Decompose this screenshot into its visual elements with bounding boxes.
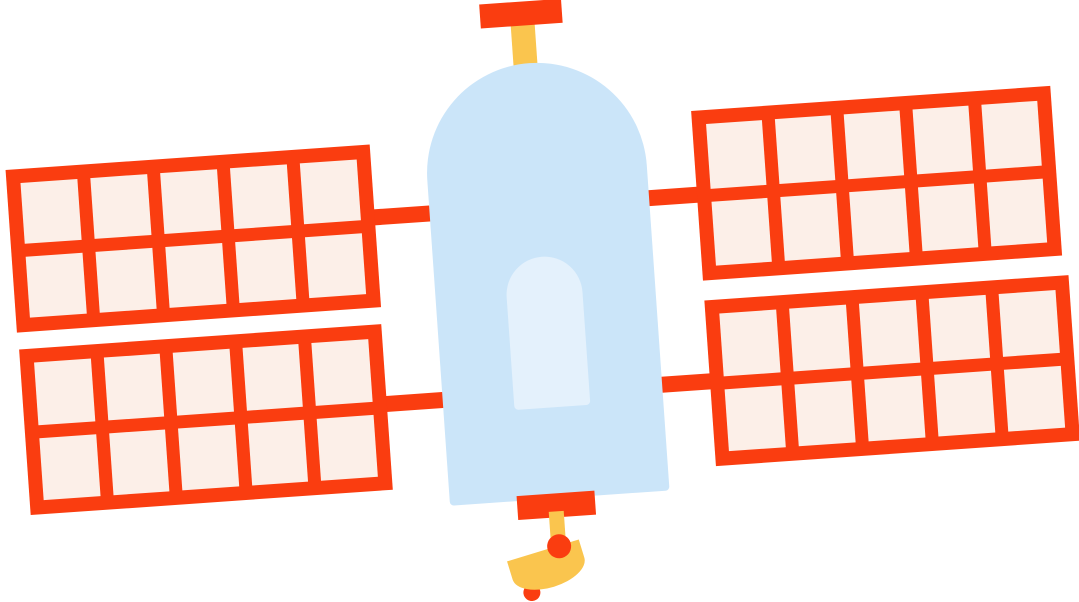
solar-cell (929, 295, 990, 361)
solar-cell (849, 188, 909, 256)
solar-cell (109, 429, 170, 495)
solar-cell (90, 174, 151, 239)
solar-cell (165, 243, 226, 308)
solar-panel-bottom-left (19, 324, 393, 515)
solar-panel-bottom-right (704, 275, 1079, 466)
solar-cell (26, 253, 87, 318)
solar-cell (987, 178, 1047, 246)
solar-cell (913, 106, 973, 174)
panel-connector-bar-top-left (366, 205, 437, 226)
satellite-body (420, 55, 670, 505)
solar-cell (1004, 365, 1065, 431)
solar-cell (711, 197, 771, 265)
solar-cell (918, 183, 978, 251)
solar-cell (864, 375, 925, 441)
solar-cell (95, 248, 156, 313)
solar-panel-top-left (6, 145, 381, 333)
solar-cell (844, 110, 904, 178)
solar-cell (235, 238, 296, 303)
solar-cell (312, 339, 373, 405)
solar-cell (999, 290, 1060, 356)
satellite-illustration (0, 0, 1079, 602)
solar-cell (230, 164, 291, 229)
solar-cell (719, 310, 780, 376)
solar-cell (859, 300, 920, 366)
solar-cell (789, 305, 850, 371)
solar-cell (103, 354, 164, 420)
solar-cell (981, 101, 1041, 169)
solar-cell (780, 193, 840, 261)
panel-connector-bar-bottom-left (379, 392, 450, 413)
solar-cell (248, 419, 309, 485)
solar-cell (242, 344, 303, 410)
satellite-group (0, 0, 1079, 602)
solar-cell (775, 115, 835, 183)
solar-cell (725, 385, 786, 451)
solar-cell (706, 120, 766, 188)
solar-cell (317, 414, 378, 480)
top-antenna-cap (479, 0, 562, 28)
solar-cell (34, 358, 95, 424)
solar-cell (794, 380, 855, 446)
solar-cell (305, 233, 366, 298)
solar-cell (39, 434, 100, 500)
solar-cell (160, 169, 221, 234)
solar-cell (173, 349, 234, 415)
solar-cell (934, 370, 995, 436)
solar-cell (300, 159, 361, 224)
solar-cell (178, 424, 239, 490)
satellite-window (504, 254, 590, 410)
solar-panel-top-right (691, 86, 1062, 281)
solar-cell (20, 179, 81, 244)
